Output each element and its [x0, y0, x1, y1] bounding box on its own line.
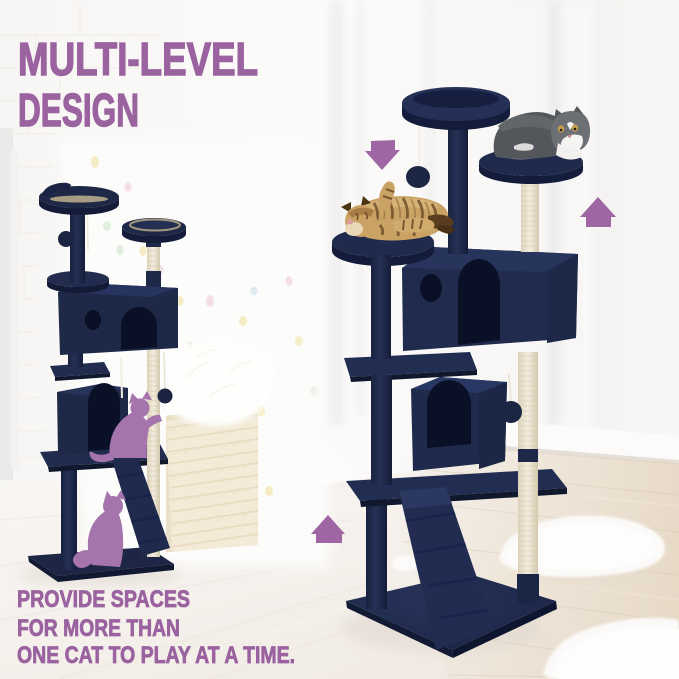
svg-text:PROVIDE SPACES: PROVIDE SPACES: [17, 586, 190, 613]
svg-text:FOR MORE THAN: FOR MORE THAN: [17, 615, 180, 642]
svg-text:DESIGN: DESIGN: [18, 84, 139, 136]
svg-text:MULTI-LEVEL: MULTI-LEVEL: [18, 33, 258, 85]
svg-text:ONE CAT TO PLAY AT A TIME.: ONE CAT TO PLAY AT A TIME.: [17, 642, 295, 669]
